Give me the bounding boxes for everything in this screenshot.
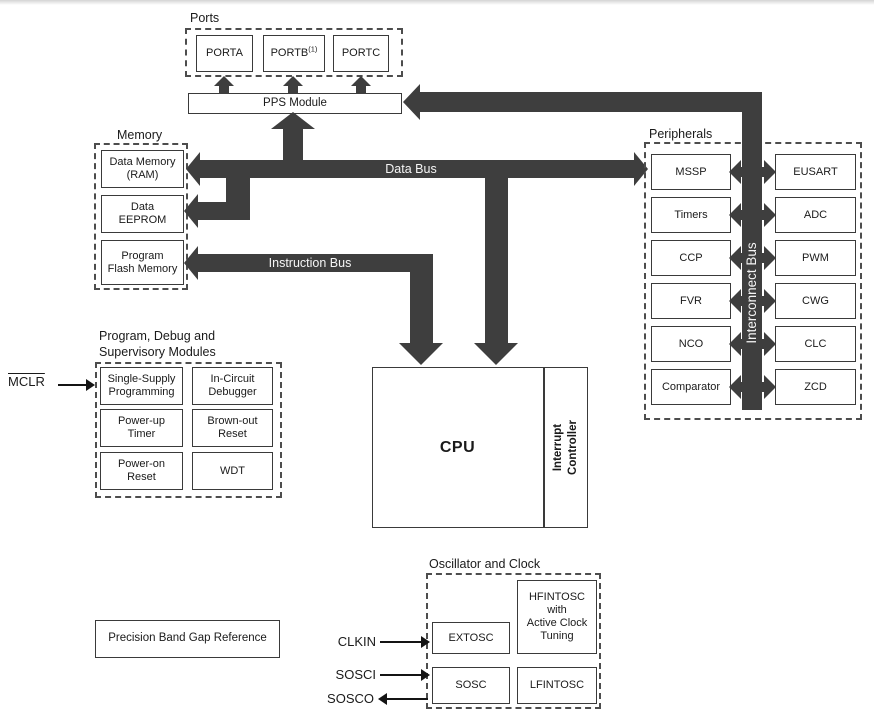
peripherals-title: Peripherals — [649, 126, 712, 142]
sosc-block: SOSC — [432, 667, 510, 704]
cwg-label: CWG — [802, 295, 829, 308]
arrow-right-icon — [764, 246, 776, 270]
arrow-left-icon — [729, 332, 741, 356]
hfintosc-label: HFINTOSC with Active Clock Tuning — [527, 591, 588, 643]
wdt-block: WDT — [192, 452, 273, 490]
sosco-pin-label: SOSCO — [318, 692, 374, 705]
data-memory-ram-block: Data Memory (RAM) — [101, 150, 184, 188]
bus-segment — [198, 202, 250, 220]
data-eeprom-block: Data EEPROM — [101, 195, 184, 233]
eusart-block: EUSART — [775, 154, 856, 190]
debug-title: Program, Debug and Supervisory Modules — [99, 328, 216, 361]
portb-footnote: (1) — [308, 44, 317, 53]
block-diagram: Ports PORTA PORTB(1) PORTC PPS Module Me… — [0, 0, 874, 720]
mssp-block: MSSP — [651, 154, 731, 190]
interconnect-bus-label: Interconnect Bus — [743, 223, 761, 363]
arrow-right-icon — [764, 375, 776, 399]
memory-title: Memory — [117, 127, 162, 143]
top-shadow — [0, 0, 874, 5]
ccp-label: CCP — [679, 252, 702, 265]
bandgap-label: Precision Band Gap Reference — [108, 632, 267, 646]
arrow-left-icon — [186, 152, 200, 186]
bandgap-block: Precision Band Gap Reference — [95, 620, 280, 658]
arrow-left-icon — [729, 375, 741, 399]
portc-label: PORTC — [342, 47, 380, 60]
ports-title: Ports — [190, 10, 219, 26]
porta-label: PORTA — [206, 47, 243, 60]
timers-label: Timers — [674, 209, 707, 222]
bus-segment — [288, 85, 298, 94]
adc-block: ADC — [775, 197, 856, 233]
extosc-label: EXTOSC — [448, 632, 493, 645]
program-flash-block: Program Flash Memory — [101, 240, 184, 285]
zcd-label: ZCD — [804, 381, 827, 394]
sosco-arrow-line — [387, 698, 428, 700]
power-up-timer-block: Power-up Timer — [100, 409, 183, 447]
clkin-pin-label: CLKIN — [326, 635, 376, 648]
arrow-left-icon — [729, 203, 741, 227]
data-eeprom-label: Data EEPROM — [119, 201, 167, 227]
arrow-right-icon — [421, 636, 430, 648]
pps-module-block: PPS Module — [188, 93, 402, 114]
lfintosc-block: LFINTOSC — [517, 667, 597, 704]
arrow-left-icon — [729, 289, 741, 313]
bus-segment — [283, 128, 303, 160]
portb-label: PORTB(1) — [271, 47, 318, 60]
clkin-arrow-line — [380, 641, 421, 643]
portc-block: PORTC — [333, 35, 389, 72]
hfintosc-block: HFINTOSC with Active Clock Tuning — [517, 580, 597, 654]
extosc-block: EXTOSC — [432, 622, 510, 654]
arrow-right-icon — [421, 669, 430, 681]
clc-label: CLC — [804, 338, 826, 351]
oscillator-title: Oscillator and Clock — [429, 556, 540, 572]
bus-segment — [740, 210, 766, 220]
arrow-up-icon — [283, 76, 303, 86]
mclr-pin-label: MCLR — [8, 375, 56, 388]
arrow-left-icon — [184, 246, 198, 280]
power-up-timer-label: Power-up Timer — [118, 415, 165, 441]
timers-block: Timers — [651, 197, 731, 233]
nco-label: NCO — [679, 338, 703, 351]
arrow-left-icon — [729, 246, 741, 270]
cwg-block: CWG — [775, 283, 856, 319]
comparator-block: Comparator — [651, 369, 731, 405]
portb-block: PORTB(1) — [263, 35, 325, 72]
arrow-right-icon — [764, 332, 776, 356]
interrupt-controller-label: Interrupt Controller — [549, 367, 582, 528]
cpu-label: CPU — [372, 367, 543, 528]
arrow-up-icon — [271, 112, 315, 129]
bus-segment — [219, 85, 229, 94]
program-flash-label: Program Flash Memory — [108, 250, 178, 276]
arrow-left-icon — [378, 693, 387, 705]
bus-segment — [485, 178, 508, 343]
arrow-left-icon — [403, 84, 420, 120]
arrow-up-icon — [351, 76, 371, 86]
wdt-label: WDT — [220, 465, 245, 478]
lfintosc-label: LFINTOSC — [530, 679, 584, 692]
eusart-label: EUSART — [793, 166, 837, 179]
bus-segment — [740, 382, 766, 392]
mssp-label: MSSP — [675, 166, 706, 179]
comparator-label: Comparator — [662, 381, 720, 394]
pwm-label: PWM — [802, 252, 829, 265]
zcd-block: ZCD — [775, 369, 856, 405]
arrow-right-icon — [764, 203, 776, 227]
fvr-block: FVR — [651, 283, 731, 319]
mclr-arrow-line — [58, 384, 87, 386]
adc-label: ADC — [804, 209, 827, 222]
sosci-arrow-line — [380, 674, 421, 676]
sosc-label: SOSC — [455, 679, 486, 692]
in-circuit-debugger-label: In-Circuit Debugger — [208, 373, 256, 399]
bus-segment — [410, 272, 433, 343]
single-supply-programming-label: Single-Supply Programming — [108, 373, 176, 399]
power-on-reset-label: Power-on Reset — [118, 458, 165, 484]
brown-out-reset-label: Brown-out Reset — [207, 415, 257, 441]
nco-block: NCO — [651, 326, 731, 362]
sosci-pin-label: SOSCI — [324, 668, 376, 681]
data-bus-label: Data Bus — [361, 163, 461, 176]
bus-segment — [356, 85, 366, 94]
data-memory-ram-label: Data Memory (RAM) — [109, 156, 175, 182]
power-on-reset-block: Power-on Reset — [100, 452, 183, 490]
arrow-right-icon — [764, 160, 776, 184]
single-supply-programming-block: Single-Supply Programming — [100, 367, 183, 405]
arrow-right-icon — [86, 379, 95, 391]
porta-block: PORTA — [196, 35, 253, 72]
arrow-up-icon — [214, 76, 234, 86]
pps-feed-bus — [420, 92, 762, 112]
arrow-right-icon — [764, 289, 776, 313]
bus-segment — [740, 167, 766, 177]
pps-module-label: PPS Module — [263, 97, 327, 111]
in-circuit-debugger-block: In-Circuit Debugger — [192, 367, 273, 405]
fvr-label: FVR — [680, 295, 702, 308]
brown-out-reset-block: Brown-out Reset — [192, 409, 273, 447]
arrow-left-icon — [729, 160, 741, 184]
instruction-bus-label: Instruction Bus — [250, 257, 370, 270]
pwm-block: PWM — [775, 240, 856, 276]
arrow-down-icon — [399, 343, 443, 365]
arrow-left-icon — [184, 194, 198, 228]
ccp-block: CCP — [651, 240, 731, 276]
clc-block: CLC — [775, 326, 856, 362]
cpu-interrupt-divider — [543, 367, 545, 528]
arrow-down-icon — [474, 343, 518, 365]
